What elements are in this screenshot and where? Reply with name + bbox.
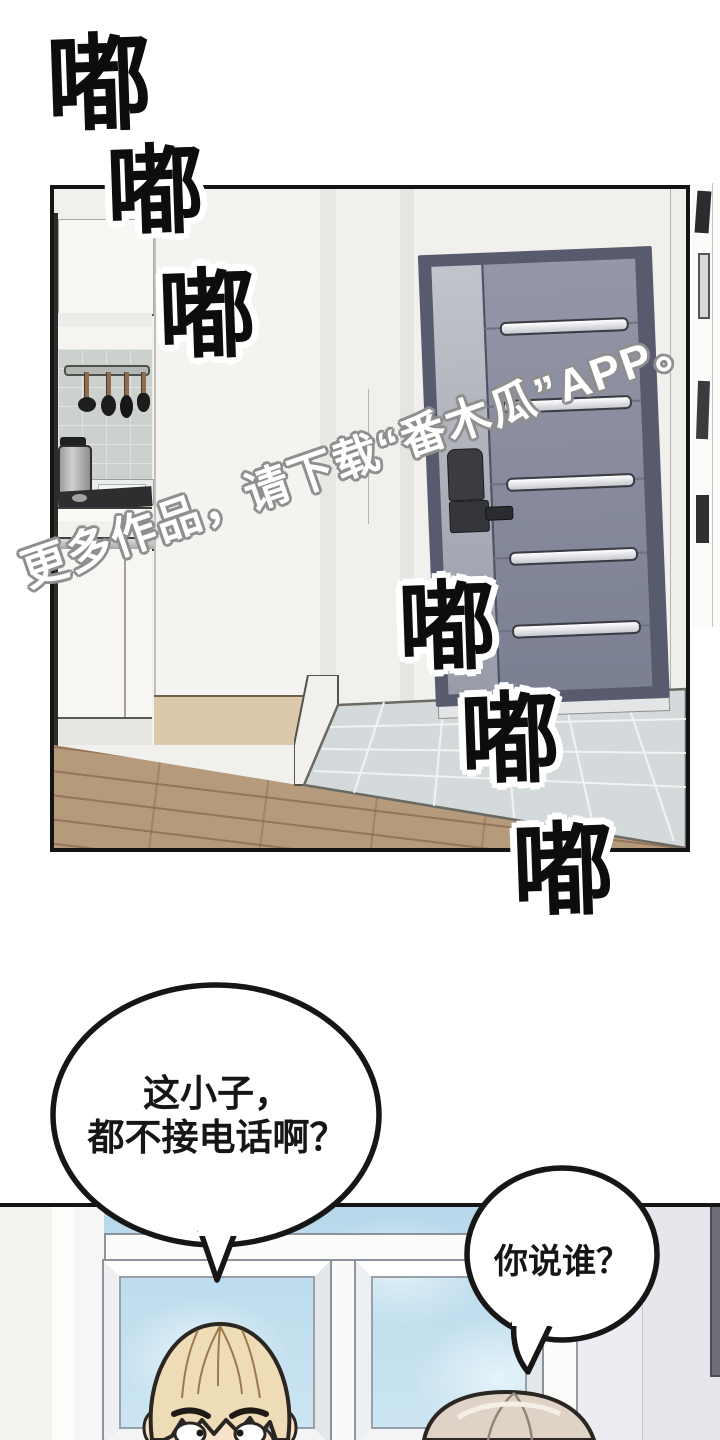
spoon-icon [101, 395, 116, 416]
hinge-icon [696, 381, 710, 439]
comic-page: 嘟 嘟 嘟 嘟 嘟 嘟 [0, 0, 720, 1440]
spatula-icon [137, 393, 150, 412]
tail-join [512, 1308, 556, 1326]
digital-lock-body [449, 500, 490, 534]
right-wall-strip [670, 189, 687, 749]
bowl-cut-hair [151, 1324, 290, 1440]
sfx-knock-6: 嘟 [510, 818, 615, 923]
dialogue-text-1: 这小子， 都不接电话啊？ [62, 1072, 372, 1161]
sfx-knock-2: 嘟 [104, 140, 205, 241]
dialogue-text-2: 你说谁？ [472, 1234, 652, 1283]
pupil [237, 1430, 244, 1437]
whisk-icon [120, 395, 133, 418]
dialogue-line: 都不接电话啊？ [62, 1116, 372, 1160]
toe-kick [58, 719, 152, 745]
ladle-handle [84, 372, 89, 400]
character-second-head [418, 1388, 608, 1440]
cabinet-door-seam [124, 549, 126, 717]
sfx-knock-1: 嘟 [44, 30, 154, 140]
sfx-knock-3: 嘟 [156, 264, 257, 365]
character-blond-man [138, 1318, 302, 1440]
hinge-icon [696, 495, 709, 543]
door-jamb-sliver [692, 183, 720, 627]
dialogue-line: 这小子， [62, 1072, 372, 1116]
hinge-icon [695, 191, 712, 234]
door-handle [485, 506, 514, 521]
pupil [197, 1430, 204, 1437]
sfx-knock-4: 嘟 [396, 576, 497, 677]
bubble-tail [200, 1230, 236, 1280]
jamb-edge-line [712, 183, 713, 627]
bubble-tail [514, 1322, 550, 1372]
tail-join [198, 1220, 240, 1236]
sfx-knock-5: 嘟 [458, 688, 561, 791]
kitchen-cabinet-bottom [58, 327, 152, 351]
kitchen-shelf [58, 313, 152, 328]
ladle-icon [78, 397, 96, 412]
curtain-edge [710, 1207, 720, 1377]
cooktop-knob [72, 494, 87, 502]
dialogue-line: 你说谁？ [472, 1234, 652, 1283]
